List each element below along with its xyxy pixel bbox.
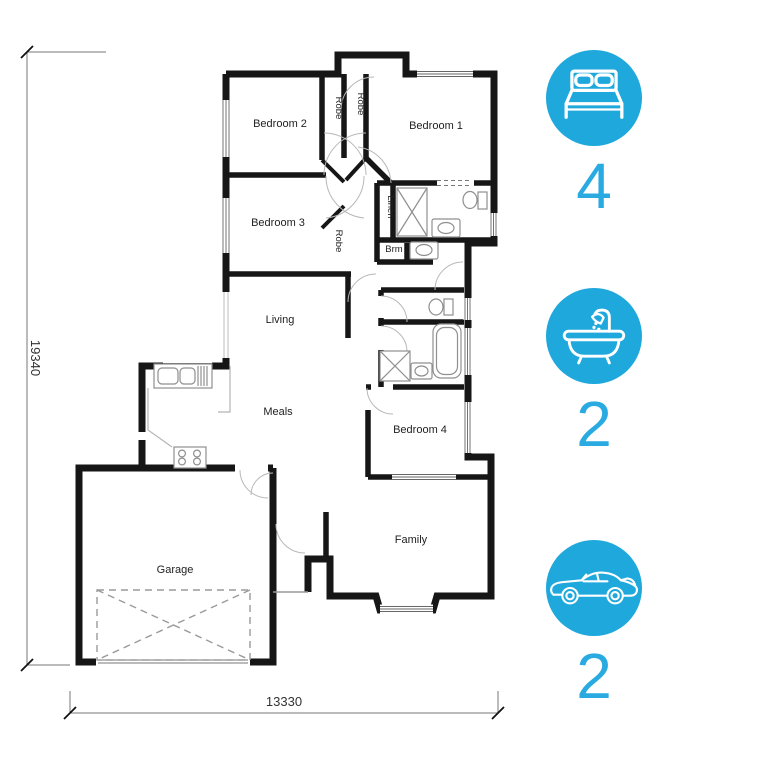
closet-label-robe-2: Robe bbox=[355, 93, 366, 116]
bedrooms-stat: 4 bbox=[546, 50, 642, 218]
bedrooms-count: 4 bbox=[546, 154, 642, 218]
room-label-bedroom1: Bedroom 1 bbox=[409, 120, 463, 132]
closet-label-linen: Linen bbox=[385, 195, 396, 218]
dimension-width: 13330 bbox=[64, 691, 504, 719]
bathrooms-stat-circle bbox=[546, 288, 642, 384]
exterior-walls bbox=[79, 55, 494, 662]
dimension-depth-label: 19340 bbox=[28, 340, 43, 376]
bathrooms-count: 2 bbox=[546, 392, 642, 456]
room-label-living: Living bbox=[266, 314, 295, 326]
closet-label-robe-3: Robe bbox=[333, 230, 344, 253]
bedrooms-stat-circle bbox=[546, 50, 642, 146]
bathrooms-stat: 2 bbox=[546, 288, 642, 456]
room-label-brm: Brm bbox=[385, 244, 403, 255]
room-label-bedroom2: Bedroom 2 bbox=[253, 118, 307, 130]
room-label-bedroom3: Bedroom 3 bbox=[251, 217, 305, 229]
room-label-family: Family bbox=[395, 534, 428, 546]
garage-car-space bbox=[97, 590, 250, 660]
bed-icon bbox=[546, 50, 642, 146]
dimension-depth: 19340 bbox=[21, 46, 106, 671]
floor-plan-svg: 19340 13330 Bedroom 2 Bedroom 1 Bedroom … bbox=[0, 0, 520, 768]
car-spaces-stat: 2 bbox=[546, 540, 642, 708]
room-labels: Bedroom 2 Bedroom 1 Bedroom 3 Living Mea… bbox=[157, 93, 463, 576]
car-icon bbox=[546, 540, 642, 636]
room-label-meals: Meals bbox=[263, 406, 293, 418]
room-label-bedroom4: Bedroom 4 bbox=[393, 424, 447, 436]
closet-label-robe-1: Robe bbox=[333, 97, 344, 120]
dimension-width-label: 13330 bbox=[266, 694, 302, 709]
floor-plan: 19340 13330 Bedroom 2 Bedroom 1 Bedroom … bbox=[0, 0, 520, 768]
bath-icon bbox=[546, 288, 642, 384]
room-label-garage: Garage bbox=[157, 564, 194, 576]
car-spaces-stat-circle bbox=[546, 540, 642, 636]
car-spaces-count: 2 bbox=[546, 644, 642, 708]
